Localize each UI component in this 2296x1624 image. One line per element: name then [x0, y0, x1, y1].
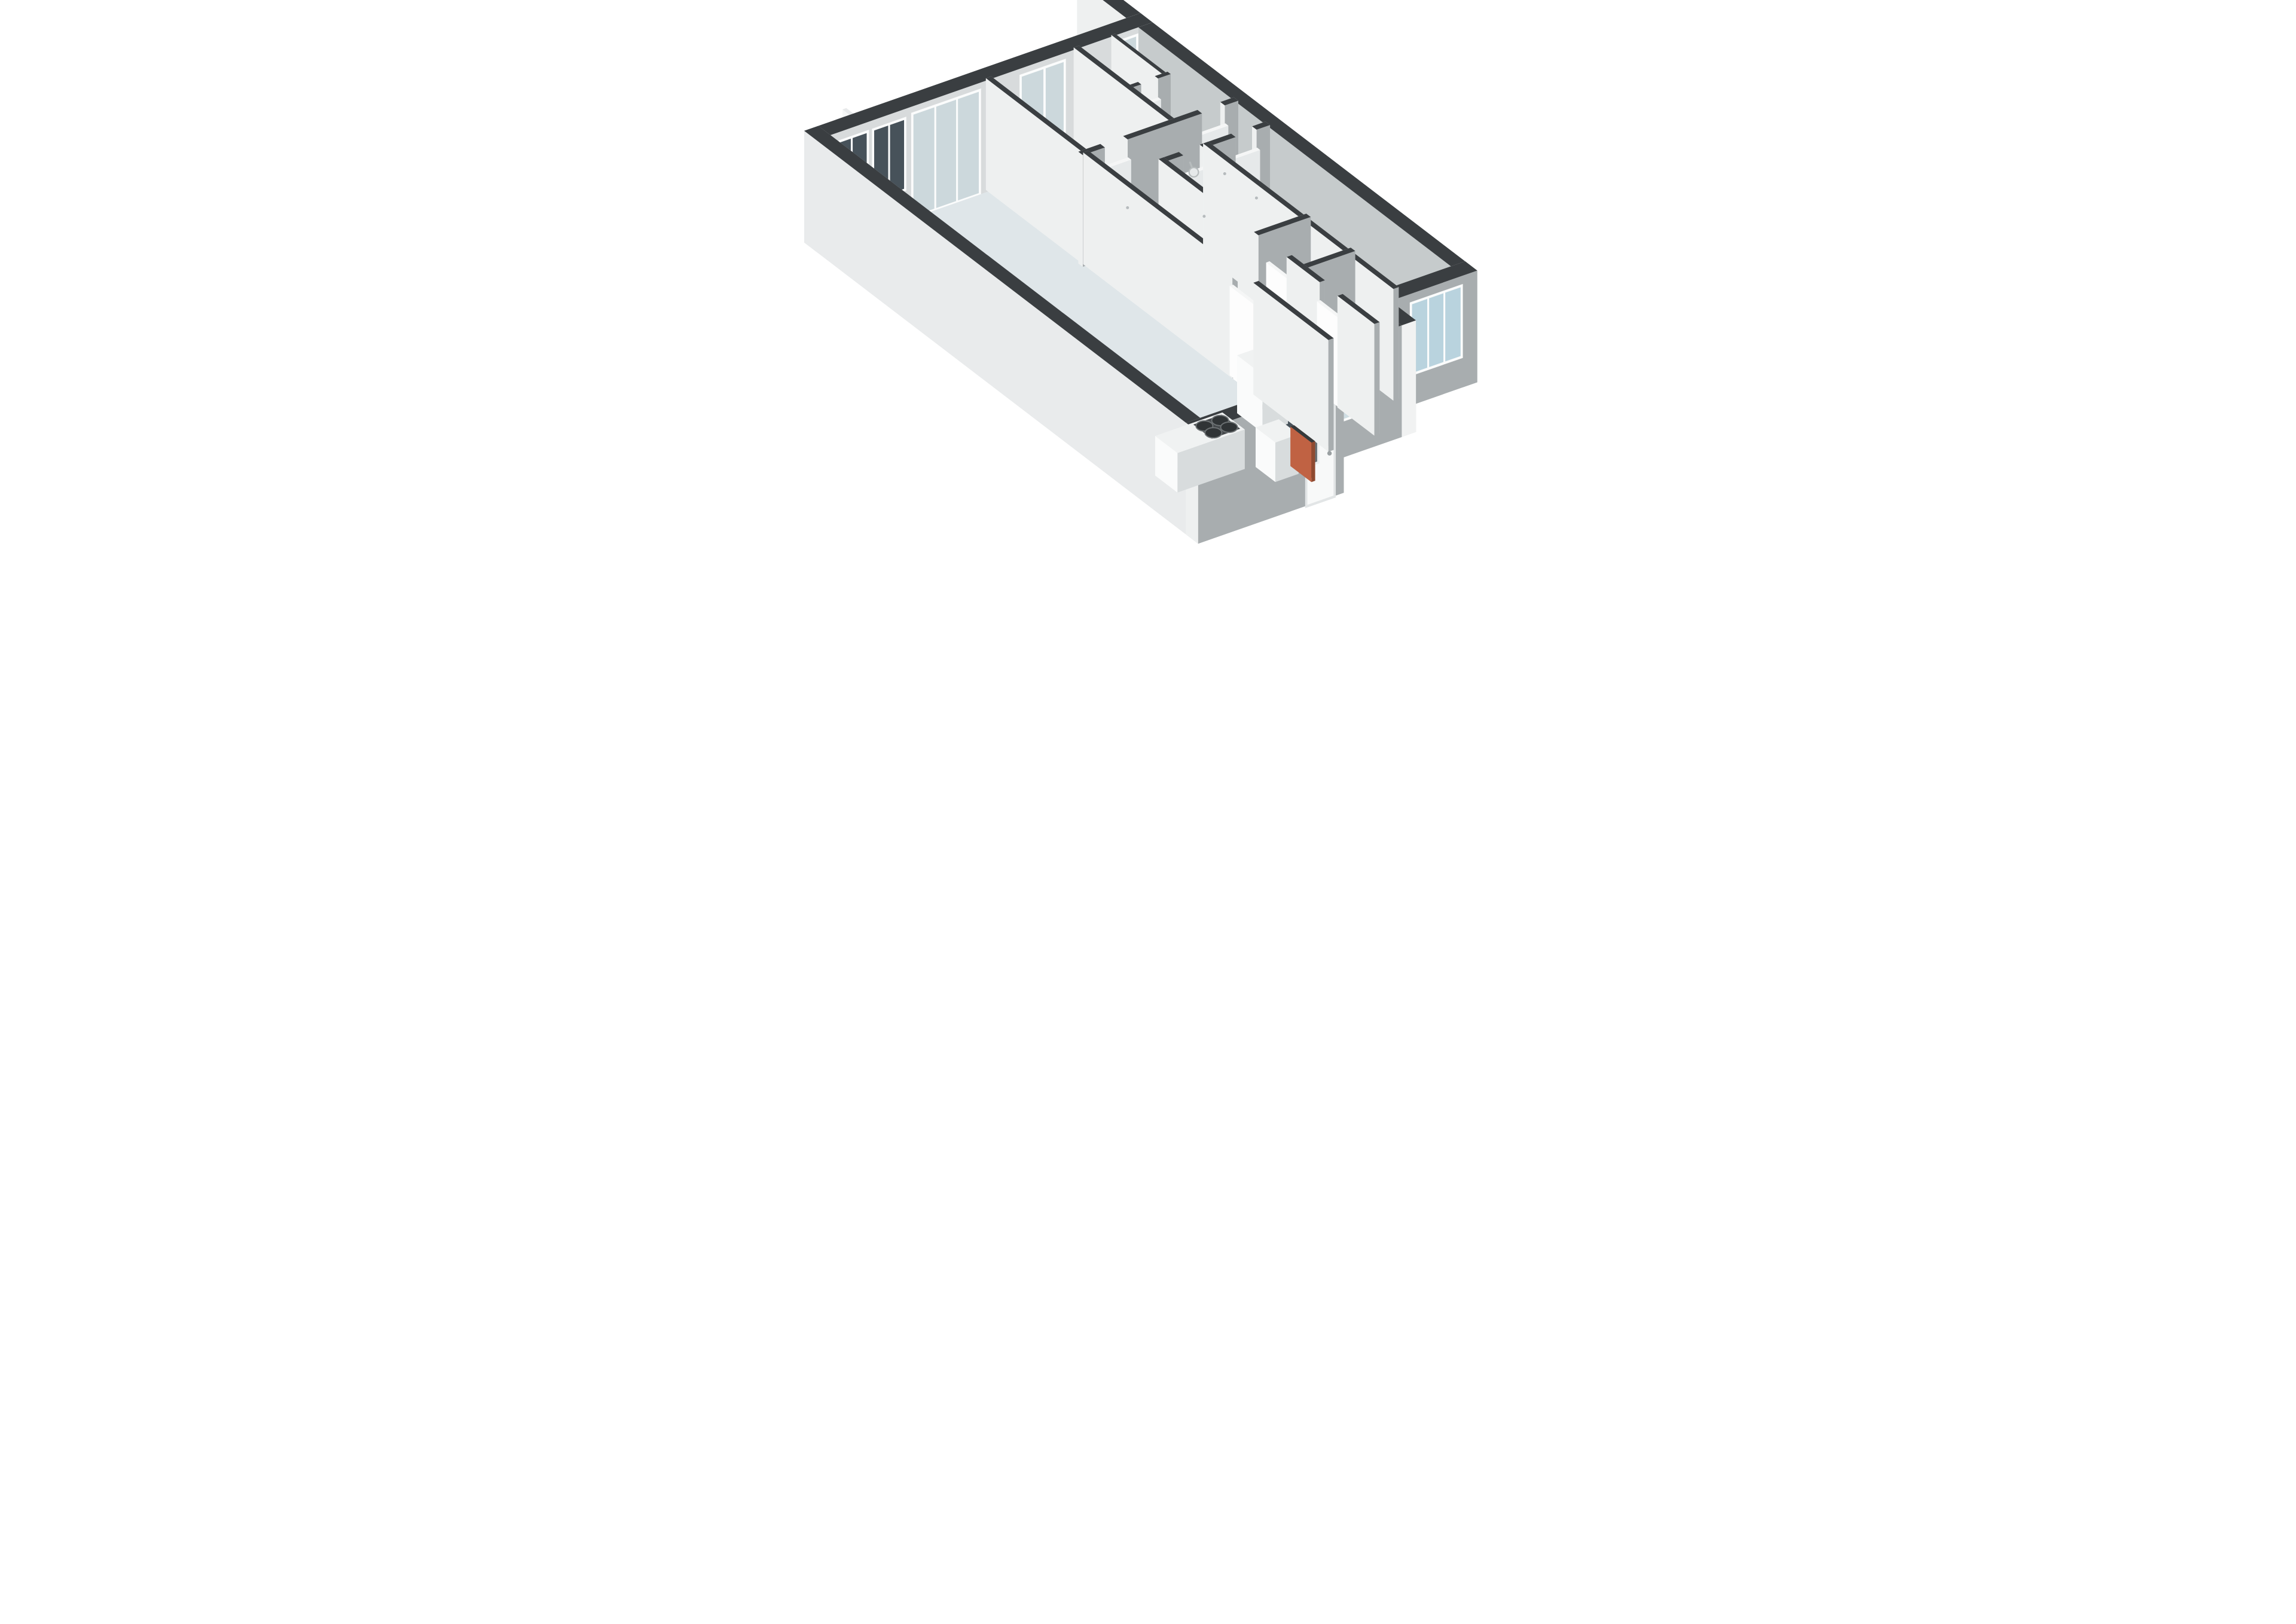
wall-hall-east-c-face: [1375, 322, 1380, 436]
front-door-handle: [1327, 451, 1332, 456]
cooktop-burner: [1205, 428, 1222, 438]
cooktop-burner: [1221, 422, 1238, 432]
radiator-face: [1311, 441, 1315, 482]
door-handle-bedroom1: [1126, 206, 1129, 209]
floorplan-canvas: [700, 0, 1596, 634]
wall-living-hall-b-face: [1329, 338, 1334, 452]
door-handle-bathroom: [1202, 215, 1205, 218]
door-handle-bedroom2: [1223, 172, 1226, 175]
door-handle-bedroom3: [1255, 197, 1258, 200]
wall-bath-bedroom3-face: [1393, 287, 1399, 401]
wall-bedroom1-se-a-face: [1078, 152, 1083, 267]
floorplan-3d-view: [700, 0, 1596, 634]
shower-head: [1189, 167, 1199, 177]
exterior-wall-step-1-face: [1402, 320, 1416, 437]
